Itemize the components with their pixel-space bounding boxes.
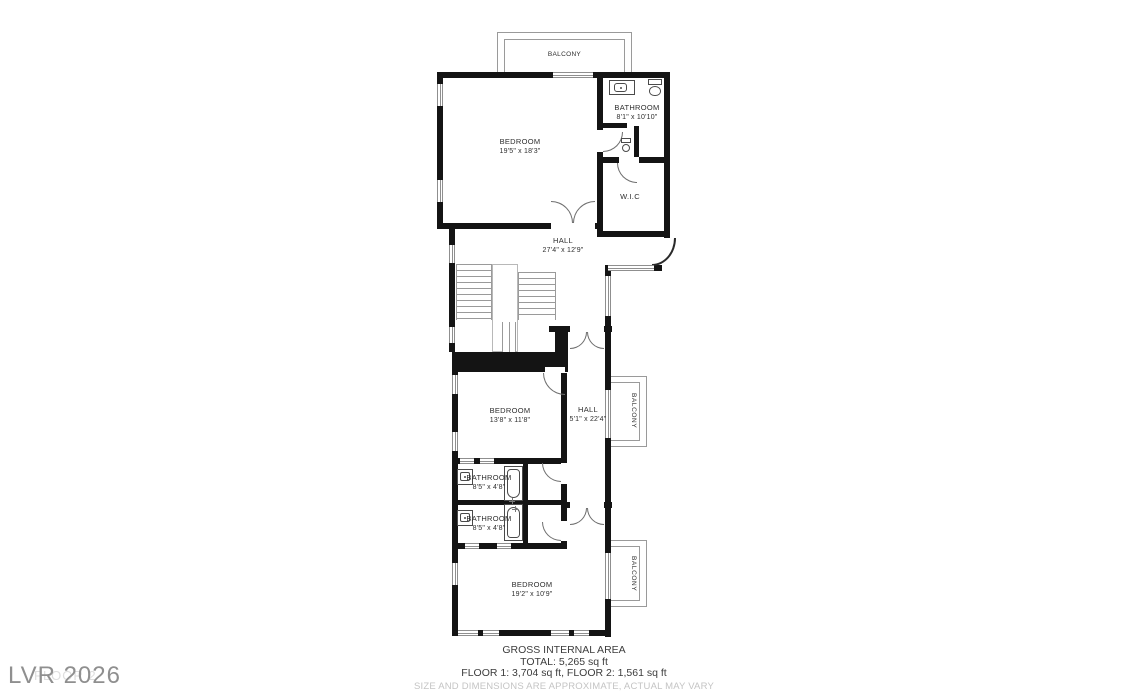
stairs-flight [456, 264, 492, 320]
room-dims: 8'1" x 10'10" [585, 113, 689, 124]
door-arc [543, 373, 565, 395]
area-summary-title: GROSS INTERNAL AREA [384, 645, 744, 657]
room-label-wic: W.I.C [578, 191, 682, 202]
room-dims: 19'5" x 18'3" [448, 147, 592, 158]
window [449, 245, 455, 263]
window [497, 543, 511, 549]
window [608, 265, 654, 271]
window [452, 432, 458, 451]
door-arc [587, 332, 604, 349]
window [460, 458, 474, 464]
room-dims: 27'4" x 12'9" [511, 246, 615, 257]
area-summary: GROSS INTERNAL AREA TOTAL: 5,265 sq ft F… [384, 645, 744, 692]
stairs-flight [518, 272, 556, 320]
window [553, 72, 593, 78]
door-opening [551, 223, 595, 229]
wall [452, 352, 458, 636]
room-label-bathroom-1: BATHROOM 8'1" x 10'10" [585, 102, 689, 124]
window [437, 84, 443, 106]
window [483, 630, 499, 636]
room-name: BATHROOM [437, 513, 541, 524]
window [458, 630, 478, 636]
area-summary-floors: FLOOR 1: 3,704 sq ft, FLOOR 2: 1,561 sq … [384, 668, 744, 680]
curved-wall [652, 238, 676, 266]
door-arc [542, 463, 561, 482]
faucet-icon [509, 498, 515, 504]
room-name: BALCONY [497, 50, 632, 60]
window [465, 543, 479, 549]
stairs-railing [502, 322, 516, 352]
floor-plan: BALCONY BEDROOM 19'5" x 18'3" BATHROOM 8… [0, 0, 1121, 700]
door-opening [561, 463, 567, 484]
room-label-balcony-top: BALCONY [497, 50, 632, 60]
door-opening [561, 521, 567, 541]
window [605, 553, 611, 599]
door-arc [570, 332, 587, 349]
wall [664, 72, 670, 238]
door-arc [587, 508, 604, 525]
room-name: BALCONY [630, 556, 637, 591]
window [449, 327, 455, 343]
room-label-hall-1: HALL 27'4" x 12'9" [511, 235, 615, 257]
window [480, 458, 494, 464]
window [574, 630, 589, 636]
door-arc [603, 132, 623, 152]
wall [563, 502, 570, 508]
room-name: BALCONY [630, 393, 637, 428]
room-name: BEDROOM [480, 579, 584, 590]
toilet [648, 79, 662, 85]
room-dims: 8'5" x 4'8" [437, 524, 541, 535]
sink-drain [620, 87, 622, 89]
room-name: BATHROOM [585, 102, 689, 113]
room-label-balcony-mid: BALCONY [621, 378, 637, 444]
toilet-bowl [649, 86, 661, 96]
door-arc [617, 163, 637, 183]
door-arc [573, 201, 595, 223]
room-name: BEDROOM [448, 136, 592, 147]
area-summary-disclaimer: SIZE AND DIMENSIONS ARE APPROXIMATE, ACT… [384, 681, 744, 693]
window [437, 180, 443, 202]
door-arc [570, 508, 587, 525]
door-arc [542, 522, 561, 541]
toilet [621, 138, 631, 143]
wall [555, 332, 568, 352]
wall [603, 123, 627, 128]
room-label-bathroom-3: BATHROOM 8'5" x 4'8" [437, 513, 541, 535]
room-name: BATHROOM [437, 472, 541, 483]
door-arc [551, 201, 573, 223]
faucet-icon [512, 506, 518, 512]
room-name: HALL [511, 235, 615, 246]
room-dims: 8'5" x 4'8" [437, 483, 541, 494]
room-label-bathroom-2: BATHROOM 8'5" x 4'8" [437, 472, 541, 494]
window [605, 276, 611, 316]
brand-watermark: LVR 2026 [8, 662, 121, 690]
window [452, 375, 458, 394]
room-label-bedroom-1: BEDROOM 19'5" x 18'3" [448, 136, 592, 158]
toilet-bowl [622, 144, 630, 152]
room-dims: 19'2" x 10'9" [480, 590, 584, 601]
room-label-balcony-bottom: BALCONY [621, 543, 637, 605]
room-name: W.I.C [578, 191, 682, 202]
window [452, 563, 458, 585]
window [551, 630, 569, 636]
room-label-bedroom-3: BEDROOM 19'2" x 10'9" [480, 579, 584, 601]
